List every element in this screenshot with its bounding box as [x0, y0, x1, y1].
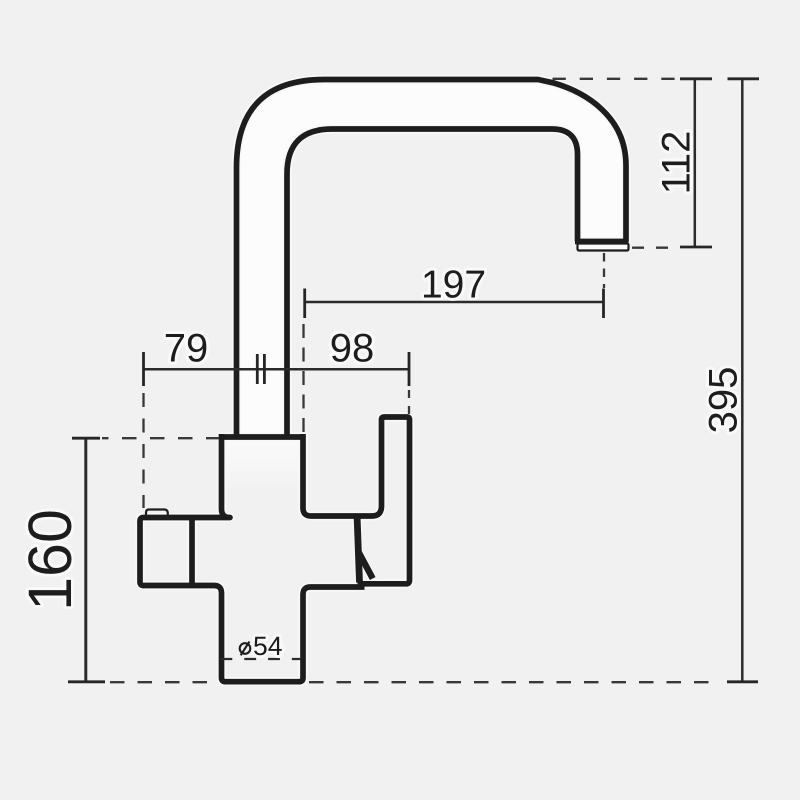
svg-text:98: 98 [330, 326, 375, 370]
svg-text:395: 395 [702, 367, 746, 434]
svg-text:197: 197 [421, 263, 486, 306]
svg-text:112: 112 [654, 131, 698, 195]
svg-text:160: 160 [16, 509, 84, 611]
svg-text:54: 54 [253, 631, 283, 661]
svg-text:79: 79 [164, 326, 209, 370]
